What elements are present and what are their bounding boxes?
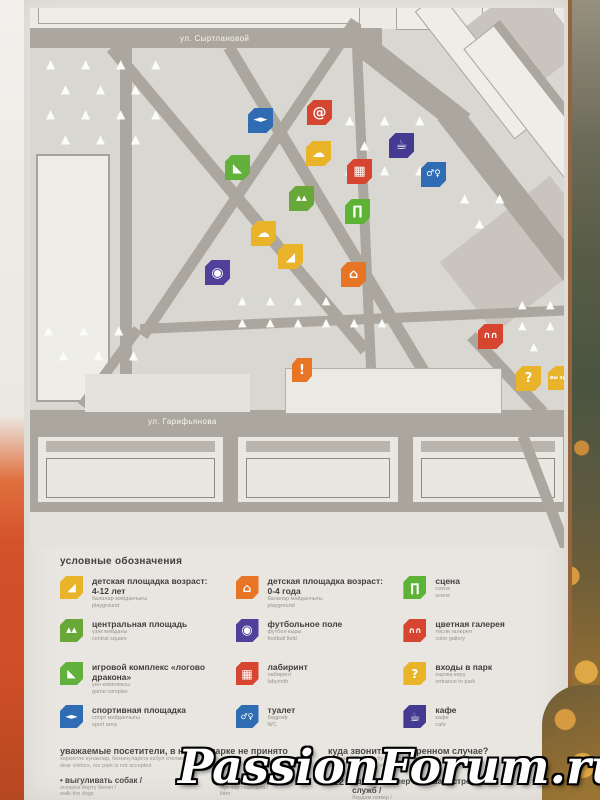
legend-item-subtitle-english: sport area: [92, 722, 186, 729]
legend-item-title: футбольное поле: [268, 619, 343, 629]
playground-0-4-icon: ⌂: [341, 262, 366, 287]
park-entrance-icon: ?: [403, 662, 426, 685]
legend-item-subtitle-tatar: үзәк мәйданы: [92, 629, 187, 636]
emergency-number-sub-tatar: бердәм номер /: [352, 795, 502, 800]
cafe-icon: ☕: [389, 133, 414, 158]
legend-item: ? входы в парк паркка керү entrance to p…: [403, 662, 556, 697]
legend-item-title: лабиринт: [268, 662, 308, 672]
building-bar: [246, 441, 390, 452]
legend-item-subtitle-english: cafe: [435, 722, 456, 729]
legend-item: ∩∩ цветная галерея төсле галерея color g…: [403, 619, 556, 654]
park-sign-board: ул. Сыртлановой ул. Гарифьянова ◄► @ ☕: [24, 0, 572, 800]
legend-item: ◣ игровой комплекс «логово дракона» уен …: [60, 662, 236, 697]
open-area: [85, 374, 250, 412]
legend-item-subtitle-english: labyrinth: [268, 679, 308, 686]
legend-item-subtitle-english: football field: [268, 636, 343, 643]
football-field-icon: ◉: [236, 619, 259, 642]
watermark: PassionForum.ru: [178, 740, 600, 795]
playground-0-4-icon: ⌂: [236, 576, 259, 599]
legend-item-title: входы в парк: [435, 662, 492, 672]
legend-item-subtitle-tatar: балалар мәйданчыгы: [92, 596, 210, 603]
park-map: ул. Сыртлановой ул. Гарифьянова ◄► @ ☕: [30, 8, 564, 548]
legend-item: ◢ детская площадка возраст: 4-12 лет бал…: [60, 576, 236, 611]
legend-item-subtitle-tatar: уен комплексы: [92, 682, 210, 689]
legend-column-2: ⌂ детская площадка возраст: 0-4 года бал…: [236, 576, 404, 740]
park-entrance-icon: ?: [516, 366, 541, 391]
legend-item-title: детская площадка возраст: 4-12 лет: [92, 576, 210, 596]
attention-icon: !: [292, 358, 312, 382]
playground-4-12-icon: ◢: [278, 244, 303, 269]
legend-item: ▦ лабиринт лабиринт labyrinth: [236, 662, 404, 697]
legend-title: условные обозначения: [60, 556, 556, 567]
photo-of-park-sign: ул. Сыртлановой ул. Гарифьянова ◄► @ ☕: [0, 0, 600, 800]
legend-column-1: ◢ детская площадка возраст: 4-12 лет бал…: [60, 576, 236, 740]
legend-item: ◄► спортивная площадка спорт мәйданчыгы …: [60, 705, 236, 740]
labyrinth-icon: ▦: [236, 662, 259, 685]
sport-area-icon: ◄►: [248, 108, 273, 133]
building-bar: [421, 441, 555, 452]
legend-item-title: спортивная площадка: [92, 705, 186, 715]
football-field-icon: ◉: [205, 260, 230, 285]
blocks-zone-bottom: [30, 410, 564, 512]
legend-item: ☕ кафе кафе cafe: [403, 705, 556, 740]
trees-cluster: [238, 290, 394, 334]
scene-icon: ∏: [345, 199, 370, 224]
art-object-icon: ☁: [251, 221, 276, 246]
legend-item: ⌂ детская площадка возраст: 0-4 года бал…: [236, 576, 404, 611]
building-outline: [246, 458, 390, 498]
legend-item-title: детская площадка возраст: 0-4 года: [268, 576, 386, 596]
game-complex-icon: ◣: [225, 155, 250, 180]
legend-item-title: кафе: [435, 705, 456, 715]
internet-point-icon: @: [307, 100, 332, 125]
legend-item-title: туалет: [268, 705, 296, 715]
legend-item-subtitle-english: scene: [435, 593, 460, 600]
legend-item-subtitle-tatar: паркка керү: [435, 672, 492, 679]
playground-4-12-icon: ◢: [60, 576, 83, 599]
legend-item-subtitle-tatar: лабиринт: [268, 672, 308, 679]
legend-item-subtitle-english: entrance to park: [435, 679, 492, 686]
map-legend: условные обозначения ◢ детская площадка …: [60, 556, 556, 740]
art-object-icon: ☁: [306, 141, 331, 166]
trees-cluster: [460, 186, 515, 236]
game-complex-icon: ◣: [60, 662, 83, 685]
legend-item-subtitle-tatar: спорт мәйданчыгы: [92, 715, 186, 722]
wc-icon: ♂♀: [236, 705, 259, 728]
central-square-icon: ▲▲: [60, 619, 83, 642]
legend-item-subtitle-english: playground: [92, 603, 210, 610]
city-block: [38, 437, 223, 502]
labyrinth-icon: ▦: [347, 159, 372, 184]
legend-item-subtitle-tatar: төсле галерея: [435, 629, 504, 636]
legend-item: ♂♀ туалет бәдрәф WC: [236, 705, 404, 740]
legend-item-title: сцена: [435, 576, 460, 586]
legend-item: ◉ футбольное поле футбол кыры football f…: [236, 619, 404, 654]
street-label-garifyanova: ул. Гарифьянова: [148, 417, 217, 426]
building-outline: [46, 458, 215, 498]
sport-area-icon: ◄►: [60, 705, 83, 728]
trees-cluster: [518, 294, 564, 357]
legend-item-subtitle-english: game complex: [92, 689, 210, 696]
legend-item-subtitle-tatar: балалар мәйданчыгы: [268, 596, 386, 603]
legend-item-subtitle-tatar: бәдрәф: [268, 715, 296, 722]
legend-item-subtitle-tatar: кафе: [435, 715, 456, 722]
legend-item-subtitle-tatar: футбол кыры: [268, 629, 343, 636]
central-square-icon: ▲▲: [289, 186, 314, 211]
legend-item-subtitle-english: playground: [268, 603, 386, 610]
building: [38, 8, 360, 24]
zone-below-blocks: [30, 512, 564, 548]
legend-item: ∏ сцена сәхнә scene: [403, 576, 556, 611]
legend-item-subtitle-english: central square: [92, 636, 187, 643]
scene-icon: ∏: [403, 576, 426, 599]
city-block: [238, 437, 398, 502]
trees-cluster: [44, 318, 149, 368]
building: [285, 368, 502, 414]
color-gallery-icon: ∩∩: [403, 619, 426, 642]
legend-item-subtitle-english: color gallery: [435, 636, 504, 643]
building-bar: [46, 441, 215, 452]
wc-icon: ♂♀: [421, 162, 446, 187]
legend-column-3: ∏ сцена сәхнә scene ∩∩ цветная галерея: [403, 576, 556, 740]
legend-item-subtitle-tatar: сәхнә: [435, 586, 460, 593]
legend-item: ▲▲ центральная площадь үзәк мәйданы cent…: [60, 619, 236, 654]
you-are-here-icon: вы здесь: [548, 366, 564, 390]
legend-item-title: центральная площадь: [92, 619, 187, 629]
trees-cluster: [46, 52, 171, 152]
color-gallery-icon: ∩∩: [478, 324, 503, 349]
legend-item-subtitle-english: WC: [268, 722, 296, 729]
street-label-syrtlanovoy: ул. Сыртлановой: [180, 34, 249, 43]
legend-item-title: цветная галерея: [435, 619, 504, 629]
legend-item-title: игровой комплекс «логово дракона»: [92, 662, 210, 682]
cafe-icon: ☕: [403, 705, 426, 728]
